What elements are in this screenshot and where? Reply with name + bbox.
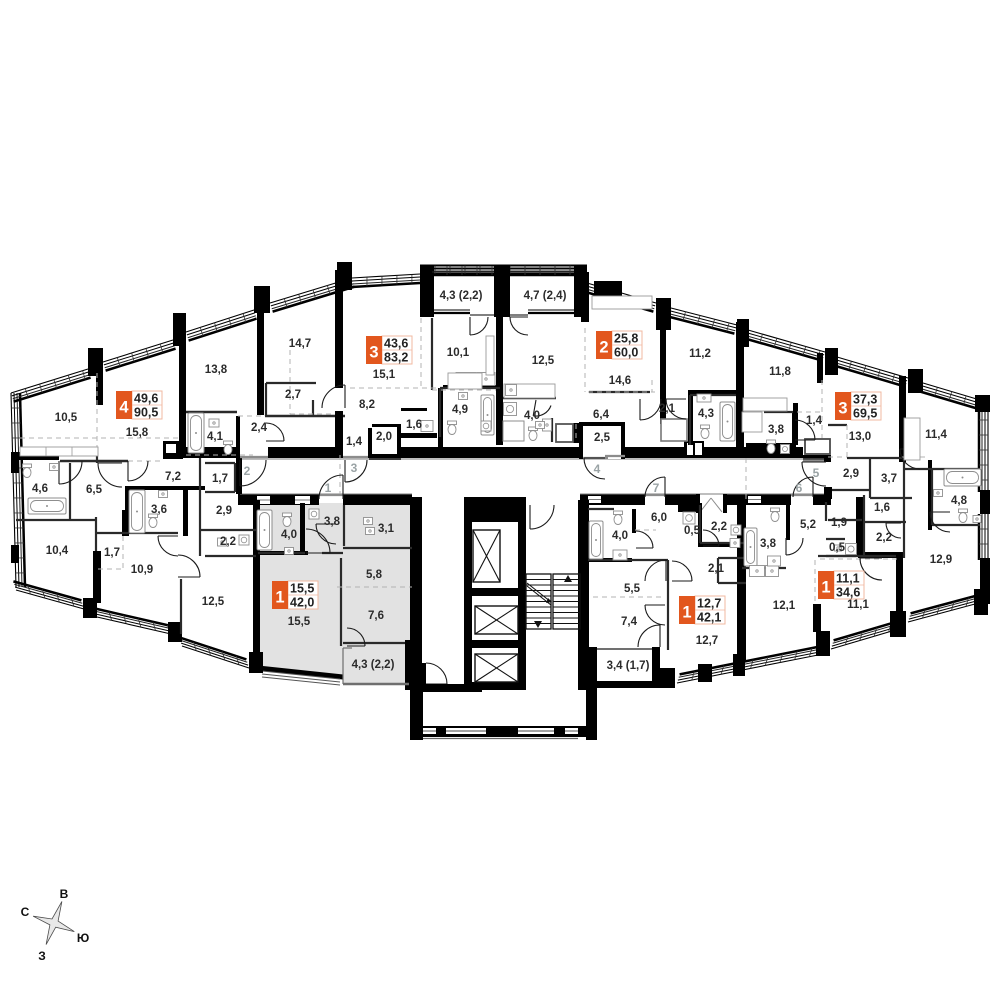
svg-text:2,2: 2,2: [876, 532, 892, 544]
svg-text:3,4 (1,7): 3,4 (1,7): [607, 660, 650, 672]
svg-text:1: 1: [275, 589, 284, 607]
svg-text:2,5: 2,5: [594, 432, 611, 444]
svg-text:4,0: 4,0: [612, 530, 628, 542]
svg-text:12,5: 12,5: [202, 596, 225, 608]
svg-text:11,1: 11,1: [836, 572, 860, 586]
svg-text:14,6: 14,6: [609, 375, 631, 387]
svg-text:1,7: 1,7: [104, 547, 120, 559]
svg-text:4,9: 4,9: [452, 404, 468, 416]
svg-text:69,5: 69,5: [853, 407, 877, 421]
svg-text:4,1: 4,1: [207, 431, 224, 443]
svg-text:4: 4: [119, 399, 129, 417]
svg-text:2,1: 2,1: [708, 563, 725, 575]
svg-text:2,9: 2,9: [843, 468, 859, 480]
svg-text:37,3: 37,3: [853, 393, 877, 407]
svg-text:3,7: 3,7: [881, 473, 897, 485]
svg-text:1,6: 1,6: [406, 419, 422, 431]
svg-text:6,4: 6,4: [593, 409, 610, 421]
svg-text:Ю: Ю: [77, 931, 89, 945]
svg-text:3: 3: [351, 461, 358, 475]
svg-text:4,8: 4,8: [951, 495, 968, 507]
svg-text:8,2: 8,2: [359, 399, 375, 411]
svg-text:4,7 (2,4): 4,7 (2,4): [524, 290, 567, 302]
svg-text:5,2: 5,2: [800, 519, 816, 531]
svg-text:4,3: 4,3: [698, 408, 714, 420]
svg-text:1,4: 1,4: [346, 436, 363, 448]
svg-text:4,3 (2,2): 4,3 (2,2): [352, 659, 395, 671]
svg-text:7,6: 7,6: [368, 610, 384, 622]
svg-text:5,8: 5,8: [366, 569, 383, 581]
svg-text:1,6: 1,6: [874, 502, 890, 514]
svg-text:2: 2: [599, 339, 608, 357]
svg-text:7,2: 7,2: [165, 471, 181, 483]
svg-text:10,5: 10,5: [55, 412, 78, 424]
svg-text:4,6: 4,6: [32, 483, 48, 495]
svg-text:З: З: [38, 949, 46, 963]
svg-text:4,3 (2,2): 4,3 (2,2): [440, 290, 483, 302]
svg-text:4,0: 4,0: [281, 529, 297, 541]
svg-text:15,5: 15,5: [290, 582, 314, 596]
svg-text:12,9: 12,9: [930, 554, 952, 566]
svg-text:0,5: 0,5: [829, 542, 846, 554]
svg-text:11,2: 11,2: [689, 348, 711, 360]
svg-text:12,1: 12,1: [773, 600, 796, 612]
svg-text:7: 7: [653, 481, 660, 495]
svg-text:42,0: 42,0: [290, 596, 314, 610]
svg-text:25,8: 25,8: [614, 332, 638, 346]
svg-text:34,6: 34,6: [836, 586, 860, 600]
svg-text:7,4: 7,4: [621, 616, 638, 628]
svg-text:12,5: 12,5: [532, 355, 555, 367]
svg-text:42,1: 42,1: [697, 611, 721, 625]
svg-text:4,0: 4,0: [524, 410, 540, 422]
svg-text:43,6: 43,6: [384, 337, 408, 351]
svg-text:14,7: 14,7: [289, 338, 311, 350]
svg-text:10,4: 10,4: [46, 545, 69, 557]
svg-text:3,6: 3,6: [151, 504, 167, 516]
svg-text:С: С: [21, 905, 30, 919]
svg-text:3,1: 3,1: [378, 523, 395, 535]
svg-text:12,7: 12,7: [697, 597, 721, 611]
svg-text:В: В: [60, 887, 69, 901]
svg-text:6: 6: [796, 481, 803, 495]
svg-text:2,4: 2,4: [251, 422, 268, 434]
svg-text:2,0: 2,0: [376, 431, 392, 443]
svg-text:2,9: 2,9: [216, 505, 232, 517]
svg-text:5: 5: [813, 466, 820, 480]
svg-text:1,9: 1,9: [831, 517, 847, 529]
svg-text:83,2: 83,2: [384, 351, 408, 365]
svg-text:6,0: 6,0: [651, 512, 667, 524]
svg-text:4: 4: [594, 462, 601, 476]
svg-text:13,0: 13,0: [849, 431, 871, 443]
svg-text:2,1: 2,1: [659, 403, 676, 415]
svg-text:15,1: 15,1: [373, 369, 396, 381]
svg-text:10,1: 10,1: [447, 347, 470, 359]
svg-text:5,5: 5,5: [624, 583, 641, 595]
svg-text:3,8: 3,8: [760, 538, 777, 550]
svg-text:1: 1: [682, 604, 691, 622]
svg-text:3: 3: [838, 400, 847, 418]
svg-text:1,7: 1,7: [212, 473, 228, 485]
svg-text:10,9: 10,9: [131, 564, 153, 576]
svg-text:3,8: 3,8: [768, 424, 785, 436]
svg-text:11,4: 11,4: [925, 429, 947, 441]
svg-text:6,5: 6,5: [86, 484, 103, 496]
svg-text:2: 2: [244, 464, 251, 478]
svg-text:2,7: 2,7: [285, 389, 301, 401]
svg-text:15,8: 15,8: [126, 427, 149, 439]
svg-text:1: 1: [821, 579, 830, 597]
svg-text:3: 3: [369, 344, 378, 362]
svg-text:11,1: 11,1: [847, 599, 869, 611]
svg-text:2,2: 2,2: [711, 521, 727, 533]
svg-text:3,8: 3,8: [324, 516, 341, 528]
svg-text:49,6: 49,6: [134, 392, 158, 406]
svg-text:1: 1: [325, 481, 332, 495]
svg-text:1,4: 1,4: [806, 415, 823, 427]
svg-text:12,7: 12,7: [696, 635, 718, 647]
svg-text:13,8: 13,8: [205, 364, 228, 376]
svg-text:2,2: 2,2: [220, 536, 236, 548]
svg-text:60,0: 60,0: [614, 346, 638, 360]
svg-text:0,5: 0,5: [684, 525, 701, 537]
svg-text:15,5: 15,5: [288, 616, 311, 628]
svg-text:90,5: 90,5: [134, 406, 158, 420]
svg-text:11,8: 11,8: [769, 366, 791, 378]
